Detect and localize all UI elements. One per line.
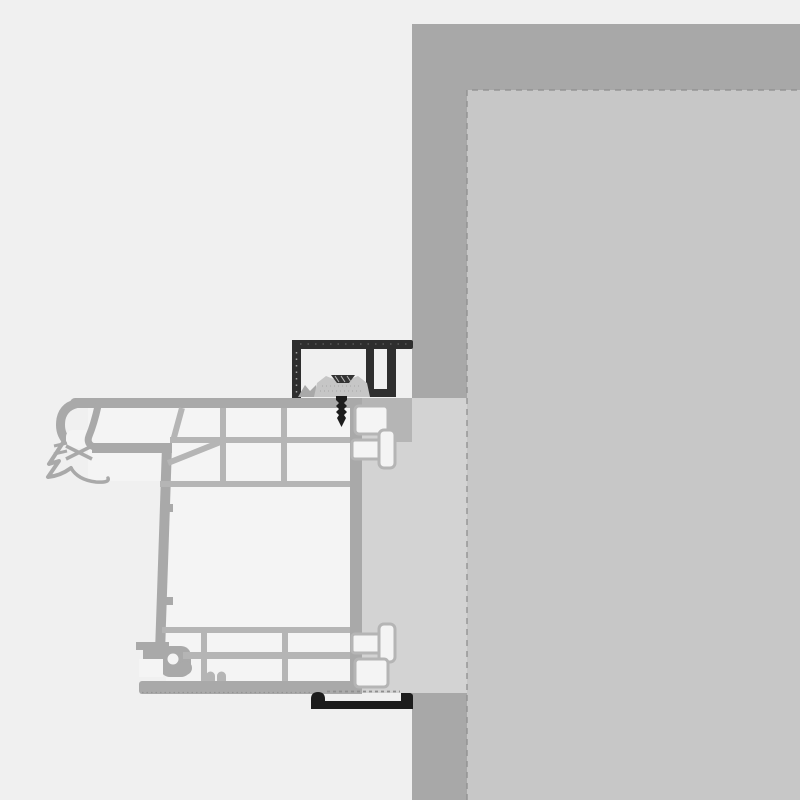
bottom-bump: [217, 672, 226, 682]
chamber-divider: [282, 632, 288, 681]
installation-section-diagram: Window frame installation cross-section …: [0, 0, 800, 800]
lug-cap-top: [379, 430, 395, 468]
sill-hook-bore: [168, 654, 179, 665]
chamber-divider: [220, 408, 226, 487]
bracket-left-leg: [292, 340, 301, 398]
bracket-channel-foot: [366, 389, 396, 397]
frame-cavity-main: [166, 486, 350, 627]
wall-rib: [164, 504, 173, 512]
chamber-divider: [162, 627, 350, 633]
sill-hook-nub: [178, 661, 192, 675]
frame-top-wall: [70, 398, 362, 408]
wall-rib: [164, 597, 173, 605]
wall-interior-face: [467, 90, 800, 800]
chamber-divider: [201, 632, 207, 681]
chamber-divider: [160, 481, 350, 487]
chamber-divider: [170, 437, 350, 443]
accessory-groove-bottom: [355, 659, 388, 687]
chamber-divider: [183, 652, 350, 659]
chamber-divider: [281, 408, 287, 487]
lug-cap-bottom: [379, 624, 395, 662]
sill-hook-notch: [139, 659, 163, 677]
bottom-bump: [206, 672, 215, 682]
gasket-arm: [92, 443, 172, 453]
